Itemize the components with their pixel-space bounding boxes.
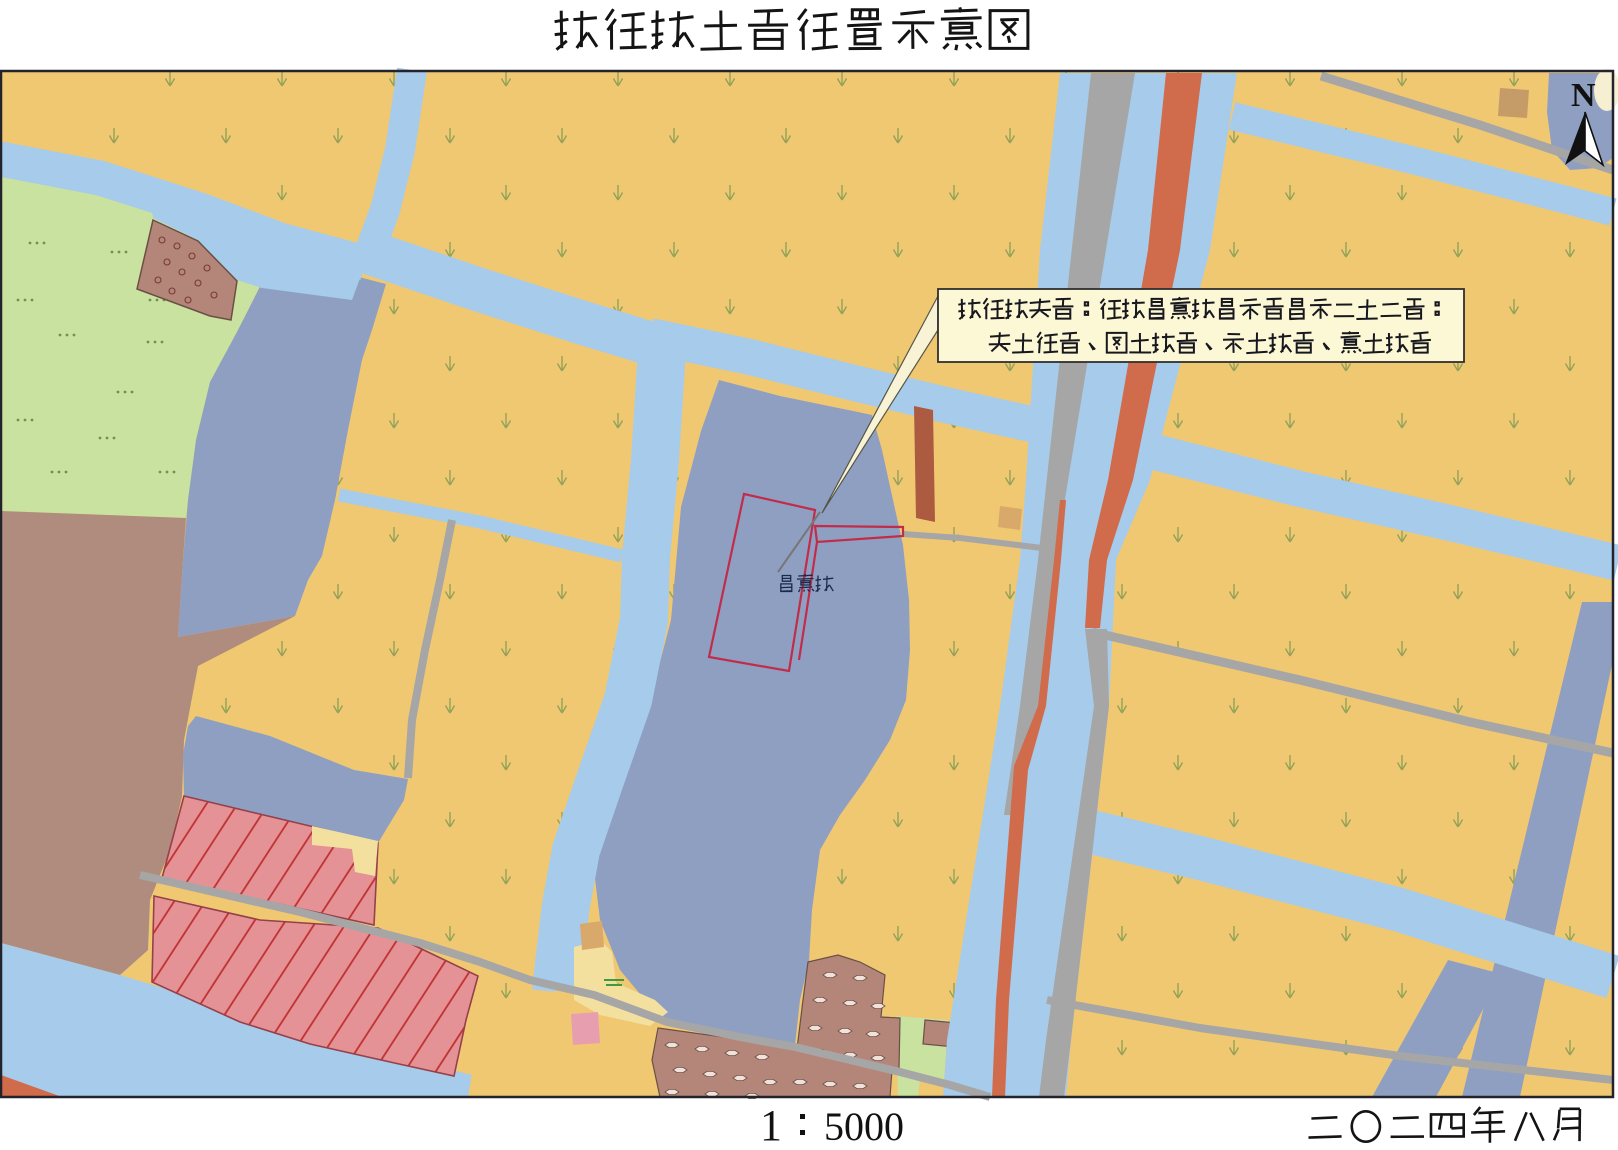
- svg-text:N: N: [1571, 77, 1596, 114]
- svg-text:1: 1: [760, 1101, 782, 1150]
- svg-text:5000: 5000: [824, 1104, 904, 1149]
